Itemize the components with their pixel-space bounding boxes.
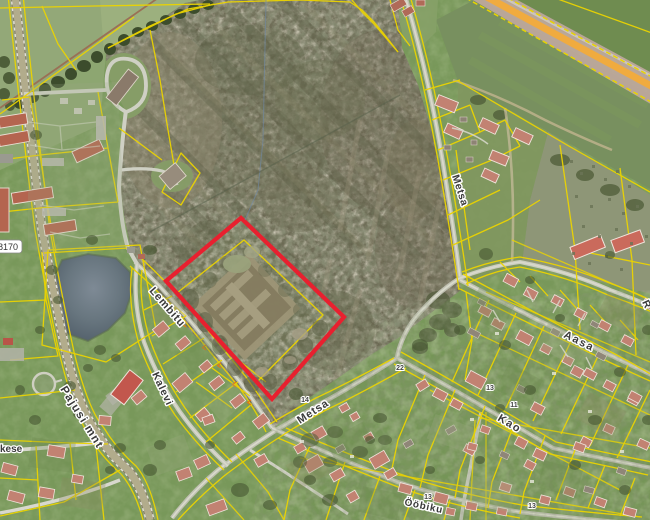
svg-text:kese: kese [0, 444, 23, 455]
svg-text:13: 13 [424, 494, 432, 501]
svg-text:22: 22 [396, 365, 404, 372]
svg-text:13: 13 [528, 503, 536, 510]
svg-text:14: 14 [301, 397, 309, 404]
svg-text:11: 11 [510, 402, 518, 409]
svg-text:8170: 8170 [0, 242, 18, 252]
svg-text:13: 13 [486, 385, 494, 392]
